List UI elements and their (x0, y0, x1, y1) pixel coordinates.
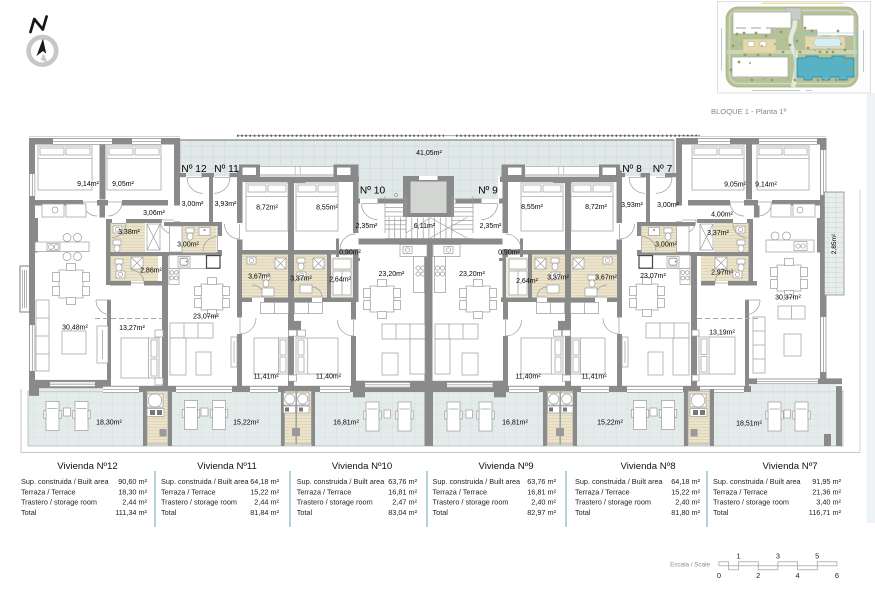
svg-text:16,81 m²: 16,81 m² (527, 487, 556, 496)
svg-text:0,90m²: 0,90m² (339, 250, 361, 257)
svg-text:8,72m²: 8,72m² (256, 205, 278, 212)
svg-text:Vivienda Nº9: Vivienda Nº9 (478, 461, 533, 472)
svg-text:41,05m²: 41,05m² (416, 150, 442, 157)
svg-text:Sup. construida / Built area: Sup. construida / Built area (297, 477, 386, 486)
svg-text:0: 0 (717, 571, 721, 580)
svg-text:Vivienda Nº7: Vivienda Nº7 (762, 461, 817, 472)
svg-text:Terraza / Terrace: Terraza / Terrace (433, 487, 488, 496)
svg-text:15,22 m²: 15,22 m² (671, 487, 700, 496)
svg-text:3,93m²: 3,93m² (621, 202, 643, 209)
svg-text:3,67m²: 3,67m² (595, 275, 617, 282)
svg-text:Vivienda Nº11: Vivienda Nº11 (197, 461, 257, 472)
svg-text:Vivienda Nº8: Vivienda Nº8 (620, 461, 675, 472)
svg-text:Sup. construida / Built area: Sup. construida / Built area (713, 477, 802, 486)
svg-text:9,05m²: 9,05m² (112, 181, 134, 188)
svg-text:5: 5 (815, 552, 819, 561)
svg-text:11,41m²: 11,41m² (581, 374, 607, 381)
svg-text:Nº 10: Nº 10 (360, 186, 386, 197)
svg-text:4,00m²: 4,00m² (711, 212, 733, 219)
svg-text:21,36 m²: 21,36 m² (812, 487, 841, 496)
svg-text:2,97m²: 2,97m² (711, 270, 733, 277)
svg-text:2,86m²: 2,86m² (140, 268, 162, 275)
svg-text:Terraza / Terrace: Terraza / Terrace (21, 487, 76, 496)
svg-text:2: 2 (756, 571, 760, 580)
svg-text:BLOQUE 1 - Planta 1º: BLOQUE 1 - Planta 1º (711, 107, 787, 116)
svg-text:Trastero / storage room: Trastero / storage room (713, 498, 789, 507)
svg-text:11,40m²: 11,40m² (515, 374, 541, 381)
svg-text:3,37m²: 3,37m² (290, 276, 312, 283)
svg-text:9,05m²: 9,05m² (724, 182, 746, 189)
svg-text:90,60 m²: 90,60 m² (118, 477, 147, 486)
svg-text:6,11m²: 6,11m² (414, 223, 436, 230)
svg-text:Terraza / Terrace: Terraza / Terrace (575, 487, 630, 496)
svg-text:15,22 m²: 15,22 m² (250, 487, 279, 496)
svg-text:Nº 8: Nº 8 (622, 164, 642, 175)
svg-text:3,38m²: 3,38m² (118, 229, 140, 236)
svg-text:63,76 m²: 63,76 m² (388, 477, 417, 486)
svg-text:3,37m²: 3,37m² (547, 275, 569, 282)
svg-text:1: 1 (737, 552, 741, 561)
svg-text:Total: Total (21, 508, 37, 517)
svg-text:4: 4 (796, 571, 800, 580)
svg-text:2,40 m²: 2,40 m² (531, 498, 556, 507)
svg-text:81,84 m²: 81,84 m² (250, 508, 279, 517)
svg-text:82,97 m²: 82,97 m² (527, 508, 556, 517)
svg-text:8,55m²: 8,55m² (521, 204, 543, 211)
svg-text:Trastero / storage room: Trastero / storage room (161, 498, 237, 507)
svg-text:2,35m²: 2,35m² (356, 223, 378, 230)
svg-text:Nº 12: Nº 12 (181, 164, 207, 175)
svg-text:18,30m²: 18,30m² (96, 420, 122, 427)
svg-text:3,00m²: 3,00m² (655, 242, 677, 249)
svg-text:8,72m²: 8,72m² (585, 204, 607, 211)
svg-text:15,22m²: 15,22m² (597, 420, 623, 427)
svg-text:11,41m²: 11,41m² (253, 374, 279, 381)
svg-text:111,34 m²: 111,34 m² (115, 508, 147, 517)
svg-text:2,47 m²: 2,47 m² (392, 498, 417, 507)
svg-text:16,81m²: 16,81m² (333, 420, 359, 427)
svg-text:13,19m²: 13,19m² (709, 330, 735, 337)
svg-text:Total: Total (297, 508, 313, 517)
svg-text:30,37m²: 30,37m² (775, 295, 801, 302)
svg-text:63,76 m²: 63,76 m² (527, 477, 556, 486)
svg-text:15,22m²: 15,22m² (233, 420, 259, 427)
svg-text:2,64m²: 2,64m² (516, 278, 538, 285)
svg-text:3,00m²: 3,00m² (657, 202, 679, 209)
svg-text:Vivienda Nº12: Vivienda Nº12 (57, 461, 117, 472)
svg-text:116,71 m²: 116,71 m² (809, 508, 842, 517)
svg-text:18,30 m²: 18,30 m² (118, 487, 147, 496)
svg-text:Nº 7: Nº 7 (653, 164, 673, 175)
svg-text:Sup. construida / Built area: Sup. construida / Built area (575, 477, 664, 486)
svg-text:Nº 9: Nº 9 (478, 186, 498, 197)
svg-text:Escala / Scale: Escala / Scale (670, 562, 710, 569)
svg-text:Nº 11: Nº 11 (214, 164, 239, 175)
svg-text:2,44 m²: 2,44 m² (122, 498, 147, 507)
svg-text:64,18 m²: 64,18 m² (250, 477, 279, 486)
svg-text:23,07m²: 23,07m² (640, 273, 666, 280)
svg-text:Vivienda Nº10: Vivienda Nº10 (332, 461, 392, 472)
svg-text:2,85m²: 2,85m² (831, 233, 838, 254)
svg-text:Total: Total (575, 508, 591, 517)
svg-text:16,81m²: 16,81m² (502, 420, 528, 427)
svg-text:23,20m²: 23,20m² (379, 271, 405, 278)
svg-text:2,44 m²: 2,44 m² (254, 498, 279, 507)
svg-text:2,35m²: 2,35m² (480, 223, 502, 230)
svg-text:23,20m²: 23,20m² (459, 271, 485, 278)
svg-text:Trastero / storage room: Trastero / storage room (433, 498, 509, 507)
svg-text:83,04 m²: 83,04 m² (388, 508, 417, 517)
svg-text:Total: Total (713, 508, 729, 517)
svg-text:6: 6 (835, 571, 839, 580)
svg-text:3,00m²: 3,00m² (182, 201, 204, 208)
svg-text:3: 3 (776, 552, 780, 561)
svg-text:81,80 m²: 81,80 m² (671, 508, 700, 517)
svg-text:Sup. construida / Built area: Sup. construida / Built area (21, 477, 110, 486)
svg-text:30,48m²: 30,48m² (62, 325, 88, 332)
svg-text:Terraza / Terrace: Terraza / Terrace (161, 487, 216, 496)
svg-text:Trastero / storage room: Trastero / storage room (297, 498, 373, 507)
svg-text:2,40 m²: 2,40 m² (675, 498, 700, 507)
svg-text:18,51m²: 18,51m² (736, 421, 762, 428)
svg-text:9,14m²: 9,14m² (755, 182, 777, 189)
svg-text:8,55m²: 8,55m² (316, 205, 338, 212)
svg-text:3,40 m²: 3,40 m² (816, 498, 841, 507)
svg-text:11,40m²: 11,40m² (316, 374, 342, 381)
svg-text:Total: Total (433, 508, 449, 517)
svg-text:2,64m²: 2,64m² (329, 277, 351, 284)
svg-text:9,14m²: 9,14m² (77, 181, 99, 188)
svg-text:Sup. construida / Built area: Sup. construida / Built area (433, 477, 522, 486)
svg-text:3,67m²: 3,67m² (248, 274, 270, 281)
svg-text:3,06m²: 3,06m² (143, 210, 165, 217)
svg-text:23,07m²: 23,07m² (193, 314, 219, 321)
svg-text:Total: Total (161, 508, 177, 517)
svg-text:Terraza / Terrace: Terraza / Terrace (297, 487, 352, 496)
svg-text:64,18 m²: 64,18 m² (671, 477, 700, 486)
svg-text:Sup. construida / Built area: Sup. construida / Built area (161, 477, 250, 486)
svg-text:16,81 m²: 16,81 m² (388, 487, 417, 496)
svg-text:3,37m²: 3,37m² (707, 230, 729, 237)
svg-text:Trastero / storage room: Trastero / storage room (21, 498, 97, 507)
svg-text:0,90m²: 0,90m² (498, 250, 520, 257)
svg-text:Terraza / Terrace: Terraza / Terrace (713, 487, 768, 496)
svg-text:3,00m²: 3,00m² (177, 242, 199, 249)
svg-text:3,93m²: 3,93m² (215, 201, 237, 208)
svg-text:13,27m²: 13,27m² (119, 325, 145, 332)
svg-text:91,95 m²: 91,95 m² (812, 477, 841, 486)
svg-text:Trastero / storage room: Trastero / storage room (575, 498, 651, 507)
